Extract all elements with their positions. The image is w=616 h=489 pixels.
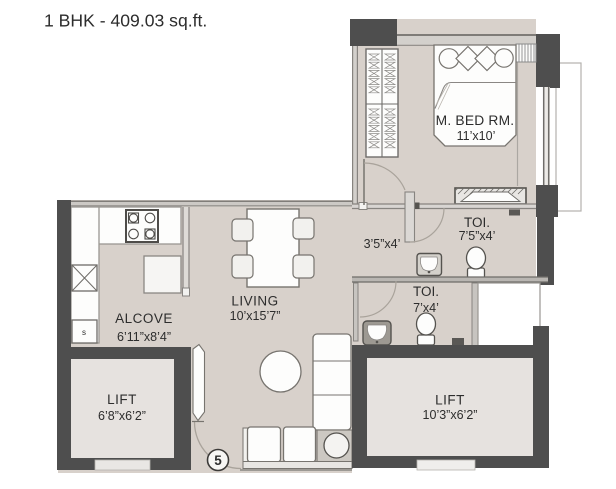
svg-text:11’x10’: 11’x10’ <box>457 129 496 143</box>
svg-text:LIVING: LIVING <box>231 294 278 309</box>
svg-text:3’5”x4’: 3’5”x4’ <box>364 237 401 251</box>
svg-text:TOI.: TOI. <box>464 215 490 230</box>
svg-text:10’x15’7”: 10’x15’7” <box>230 309 281 323</box>
svg-text:1 BHK - 409.03 sq.ft.: 1 BHK - 409.03 sq.ft. <box>44 11 207 31</box>
svg-text:M. BED RM.: M. BED RM. <box>436 113 515 128</box>
svg-text:s: s <box>82 328 86 337</box>
svg-text:ALCOVE: ALCOVE <box>115 311 173 326</box>
svg-text:7’x4’: 7’x4’ <box>413 301 439 315</box>
svg-text:TOI.: TOI. <box>413 284 439 299</box>
svg-text:7’5”x4’: 7’5”x4’ <box>459 229 496 243</box>
svg-text:6’11”x8’4”: 6’11”x8’4” <box>117 330 171 344</box>
svg-text:10’3”x6’2”: 10’3”x6’2” <box>423 408 478 422</box>
svg-text:6’8”x6’2”: 6’8”x6’2” <box>98 409 146 423</box>
svg-text:LIFT: LIFT <box>435 393 465 408</box>
svg-text:LIFT: LIFT <box>107 392 137 407</box>
svg-text:5: 5 <box>214 453 222 468</box>
